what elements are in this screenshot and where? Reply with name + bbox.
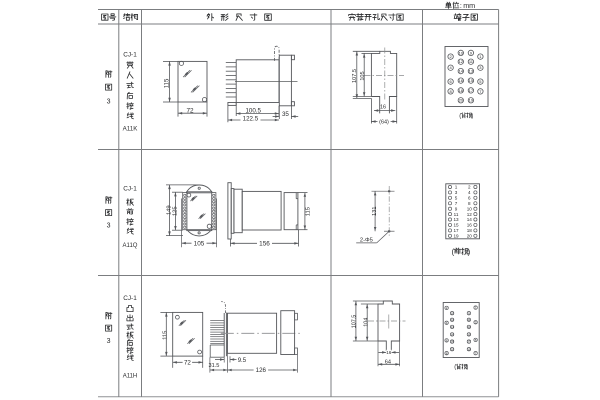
svg-text:115: 115 — [163, 331, 169, 340]
svg-text:20: 20 — [459, 98, 464, 103]
svg-text:19: 19 — [453, 234, 459, 239]
svg-text:2-Φ5: 2-Φ5 — [360, 237, 373, 243]
svg-text:104: 104 — [363, 318, 369, 327]
svg-text:): ) — [466, 365, 468, 371]
svg-text:16: 16 — [459, 78, 464, 83]
svg-text:20: 20 — [450, 347, 454, 351]
svg-text:35: 35 — [282, 111, 289, 118]
svg-text:): ) — [471, 113, 473, 119]
svg-text:115: 115 — [306, 207, 312, 216]
svg-text:16: 16 — [467, 223, 473, 228]
svg-text:12: 12 — [450, 318, 454, 322]
svg-text:18: 18 — [459, 88, 464, 93]
svg-text:17: 17 — [469, 88, 474, 93]
svg-text:17: 17 — [467, 340, 471, 344]
svg-text:31.5: 31.5 — [208, 363, 219, 369]
svg-text:72: 72 — [186, 107, 194, 114]
svg-text:10: 10 — [467, 206, 473, 211]
svg-text:13: 13 — [467, 325, 471, 329]
svg-text:3: 3 — [107, 223, 111, 230]
svg-text:10: 10 — [459, 50, 464, 55]
svg-text:14: 14 — [459, 69, 464, 74]
svg-text:1: 1 — [455, 185, 458, 190]
svg-text:19: 19 — [467, 347, 471, 351]
svg-text:16: 16 — [386, 350, 392, 355]
svg-text:125: 125 — [173, 206, 179, 216]
svg-text:107.5: 107.5 — [352, 315, 358, 329]
svg-text:18: 18 — [467, 228, 473, 233]
svg-text:15: 15 — [467, 333, 471, 337]
svg-text:A11H: A11H — [123, 374, 138, 380]
svg-text:A11Q: A11Q — [123, 243, 138, 249]
svg-text:100.5: 100.5 — [245, 107, 261, 114]
svg-text:10: 10 — [450, 311, 454, 315]
svg-text:(: ( — [459, 113, 461, 119]
svg-text:CJ-1: CJ-1 — [123, 185, 137, 192]
svg-text:3: 3 — [107, 99, 111, 106]
svg-text:(: ( — [451, 247, 454, 256]
svg-text:72: 72 — [184, 359, 191, 366]
svg-text:CJ-1: CJ-1 — [123, 51, 137, 58]
svg-text:9.5: 9.5 — [238, 358, 247, 364]
svg-text:6: 6 — [468, 196, 471, 201]
svg-text:11: 11 — [467, 318, 470, 322]
svg-text:20: 20 — [467, 234, 473, 239]
svg-text:2: 2 — [468, 185, 471, 190]
svg-text:3: 3 — [107, 338, 111, 345]
svg-text:4: 4 — [468, 190, 471, 195]
svg-text::: : — [460, 3, 462, 10]
svg-text:(64): (64) — [379, 120, 389, 126]
svg-text:156: 156 — [259, 241, 270, 248]
svg-text:16: 16 — [380, 104, 386, 110]
svg-text:105: 105 — [360, 71, 366, 80]
svg-text:126: 126 — [256, 367, 267, 374]
svg-text:18: 18 — [450, 340, 454, 344]
svg-text:14: 14 — [450, 325, 454, 329]
svg-text:15: 15 — [453, 223, 459, 228]
svg-text:122.5: 122.5 — [243, 115, 259, 122]
svg-text:16: 16 — [450, 333, 454, 337]
svg-text:11: 11 — [454, 212, 459, 217]
svg-text:13: 13 — [453, 217, 459, 222]
svg-text:19: 19 — [469, 98, 474, 103]
svg-text:12: 12 — [459, 59, 464, 64]
svg-text:131: 131 — [372, 207, 378, 216]
svg-text:9: 9 — [455, 206, 458, 211]
svg-text:17: 17 — [453, 228, 459, 233]
svg-text:(: ( — [454, 365, 456, 371]
svg-text:3: 3 — [455, 190, 458, 195]
svg-text:7: 7 — [455, 201, 458, 206]
svg-text:CJ-1: CJ-1 — [123, 295, 137, 302]
svg-text:13: 13 — [469, 69, 474, 74]
svg-text:5: 5 — [455, 196, 458, 201]
svg-text:115: 115 — [164, 78, 170, 88]
svg-text:A11K: A11K — [123, 125, 139, 132]
svg-text:8: 8 — [468, 201, 471, 206]
svg-text:12: 12 — [467, 212, 473, 217]
svg-text:mm: mm — [463, 1, 475, 10]
svg-text:107.5: 107.5 — [352, 69, 358, 83]
svg-text:105: 105 — [194, 240, 205, 247]
svg-text:64: 64 — [385, 359, 391, 365]
svg-text:15: 15 — [469, 78, 474, 83]
svg-text:): ) — [468, 247, 471, 256]
svg-text:14: 14 — [467, 217, 473, 222]
